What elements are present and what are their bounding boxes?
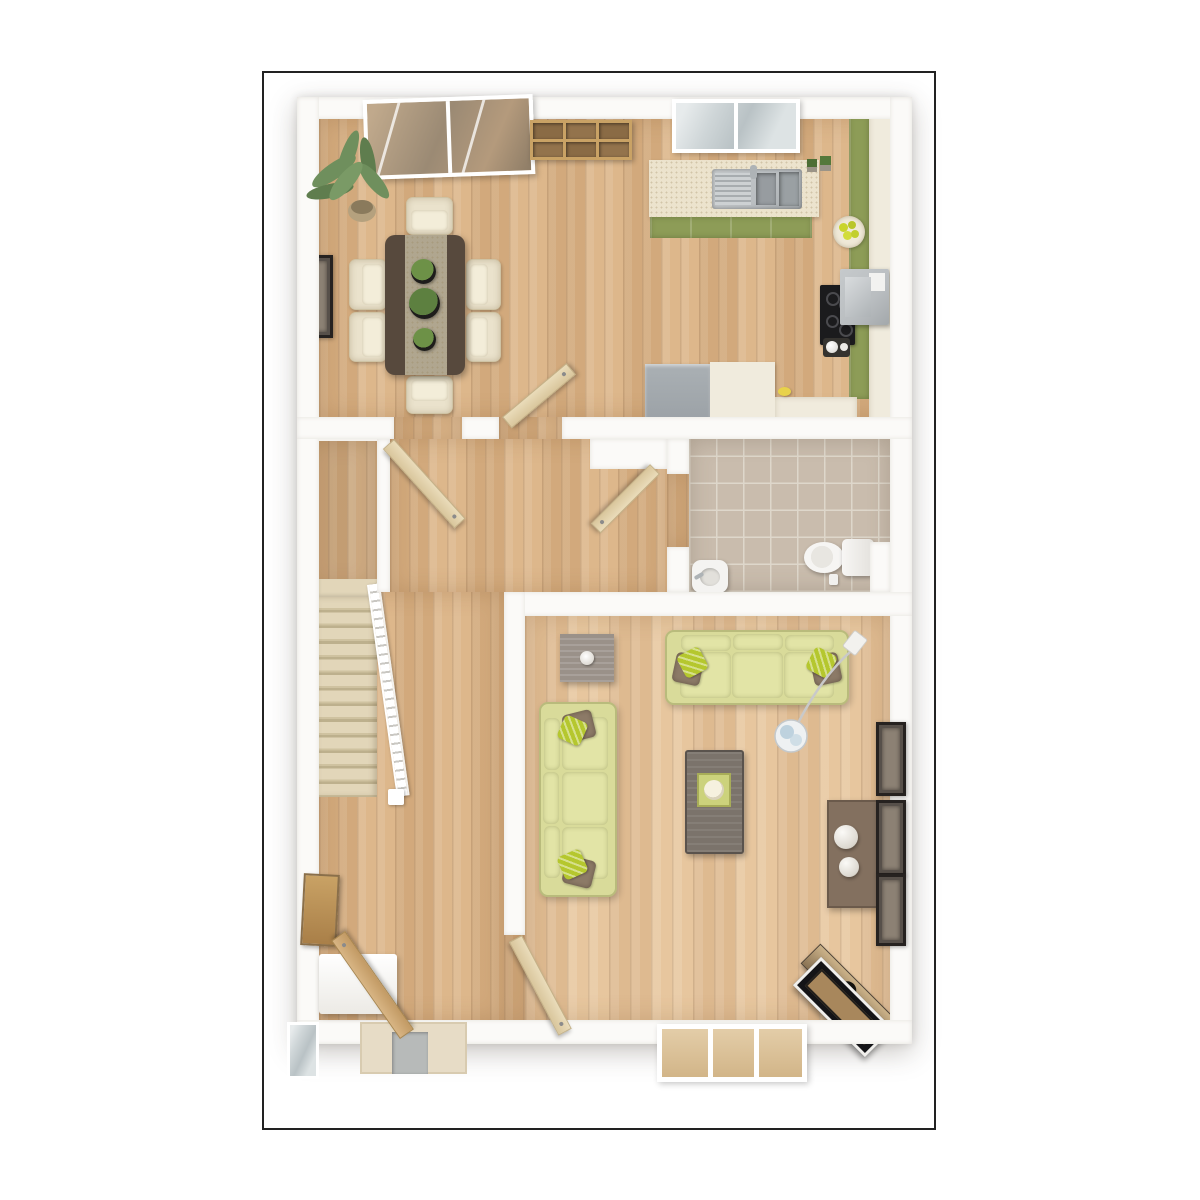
kettle	[826, 341, 838, 353]
kettle-tray	[823, 338, 850, 357]
arc-floor-lamp	[759, 623, 884, 763]
staircase	[319, 597, 377, 797]
wall-wc-west-lower	[667, 547, 689, 592]
doorway-a-threshold	[394, 417, 462, 439]
hall-wall-art	[300, 873, 340, 947]
fruit-bowl	[833, 216, 865, 248]
sink-bowl	[756, 173, 776, 205]
french-door-mullion	[446, 101, 453, 173]
wall-cube-shelves	[530, 120, 632, 160]
extractor-microwave	[840, 269, 889, 325]
canister	[840, 343, 848, 351]
candle	[580, 651, 594, 665]
kitchen-base-cabinets	[650, 217, 812, 238]
decor-sphere	[834, 825, 858, 849]
basin-bowl	[700, 568, 720, 586]
dining-chair	[406, 197, 453, 235]
sink-bowl	[779, 172, 799, 206]
front-sidelight	[287, 1022, 319, 1079]
dining-chair	[466, 312, 501, 362]
herb-pot	[807, 159, 817, 172]
extractor-hood	[845, 277, 871, 317]
window-mullion	[754, 1029, 759, 1077]
toilet-brush	[829, 574, 838, 585]
wall-closet	[377, 439, 390, 592]
window-mullion	[734, 103, 738, 149]
dish	[778, 387, 791, 396]
burner	[826, 292, 840, 306]
plate	[704, 780, 724, 800]
decor-sphere	[839, 857, 859, 877]
front-door-mat	[360, 1022, 467, 1074]
dining-chair	[406, 376, 453, 414]
sink-faucet	[750, 165, 757, 179]
table-planter	[409, 288, 440, 319]
floorplan-render	[262, 71, 936, 1130]
table-planter	[411, 259, 436, 284]
wall-wc-west-upper	[667, 439, 689, 474]
kitchen-tall-cabinet-green	[849, 115, 869, 399]
wall-mid-center	[462, 417, 499, 439]
wall-mid-left	[297, 417, 394, 439]
glass-reflection	[461, 100, 485, 173]
dining-chair	[349, 312, 387, 362]
fruit	[848, 221, 856, 229]
wall-living-north	[504, 592, 912, 616]
burner	[826, 315, 839, 328]
hand-basin	[692, 560, 728, 593]
closet-floor	[309, 441, 377, 587]
herb-pot	[820, 156, 831, 171]
dining-chair	[466, 259, 501, 310]
kitchen-window	[672, 99, 800, 153]
wc-doorway-threshold	[667, 474, 689, 547]
wall-mid-right	[562, 417, 912, 439]
wall-wc-se-chunk	[870, 542, 890, 592]
newel-post	[388, 789, 404, 805]
dining-chair	[349, 259, 387, 310]
living-wall-frame	[876, 800, 906, 876]
living-room-window	[657, 1024, 807, 1082]
coffee-table-tray	[697, 773, 731, 807]
toilet-seat	[804, 542, 844, 573]
living-wall-frame	[876, 722, 906, 796]
mat-inset	[392, 1032, 428, 1074]
living-wall-frame	[876, 874, 906, 946]
wall-living-west	[504, 592, 525, 935]
sideboard	[827, 800, 879, 908]
table-planter	[413, 328, 436, 351]
burner	[839, 323, 853, 337]
kitchen-sink	[712, 169, 802, 209]
second-sofa	[539, 702, 617, 897]
potted-palm	[304, 125, 392, 229]
microwave-door	[869, 273, 885, 291]
window-mullion	[708, 1029, 713, 1077]
sink-drainer	[715, 173, 751, 205]
fruit	[851, 230, 859, 238]
wall-wc-north-chunk	[590, 439, 667, 469]
